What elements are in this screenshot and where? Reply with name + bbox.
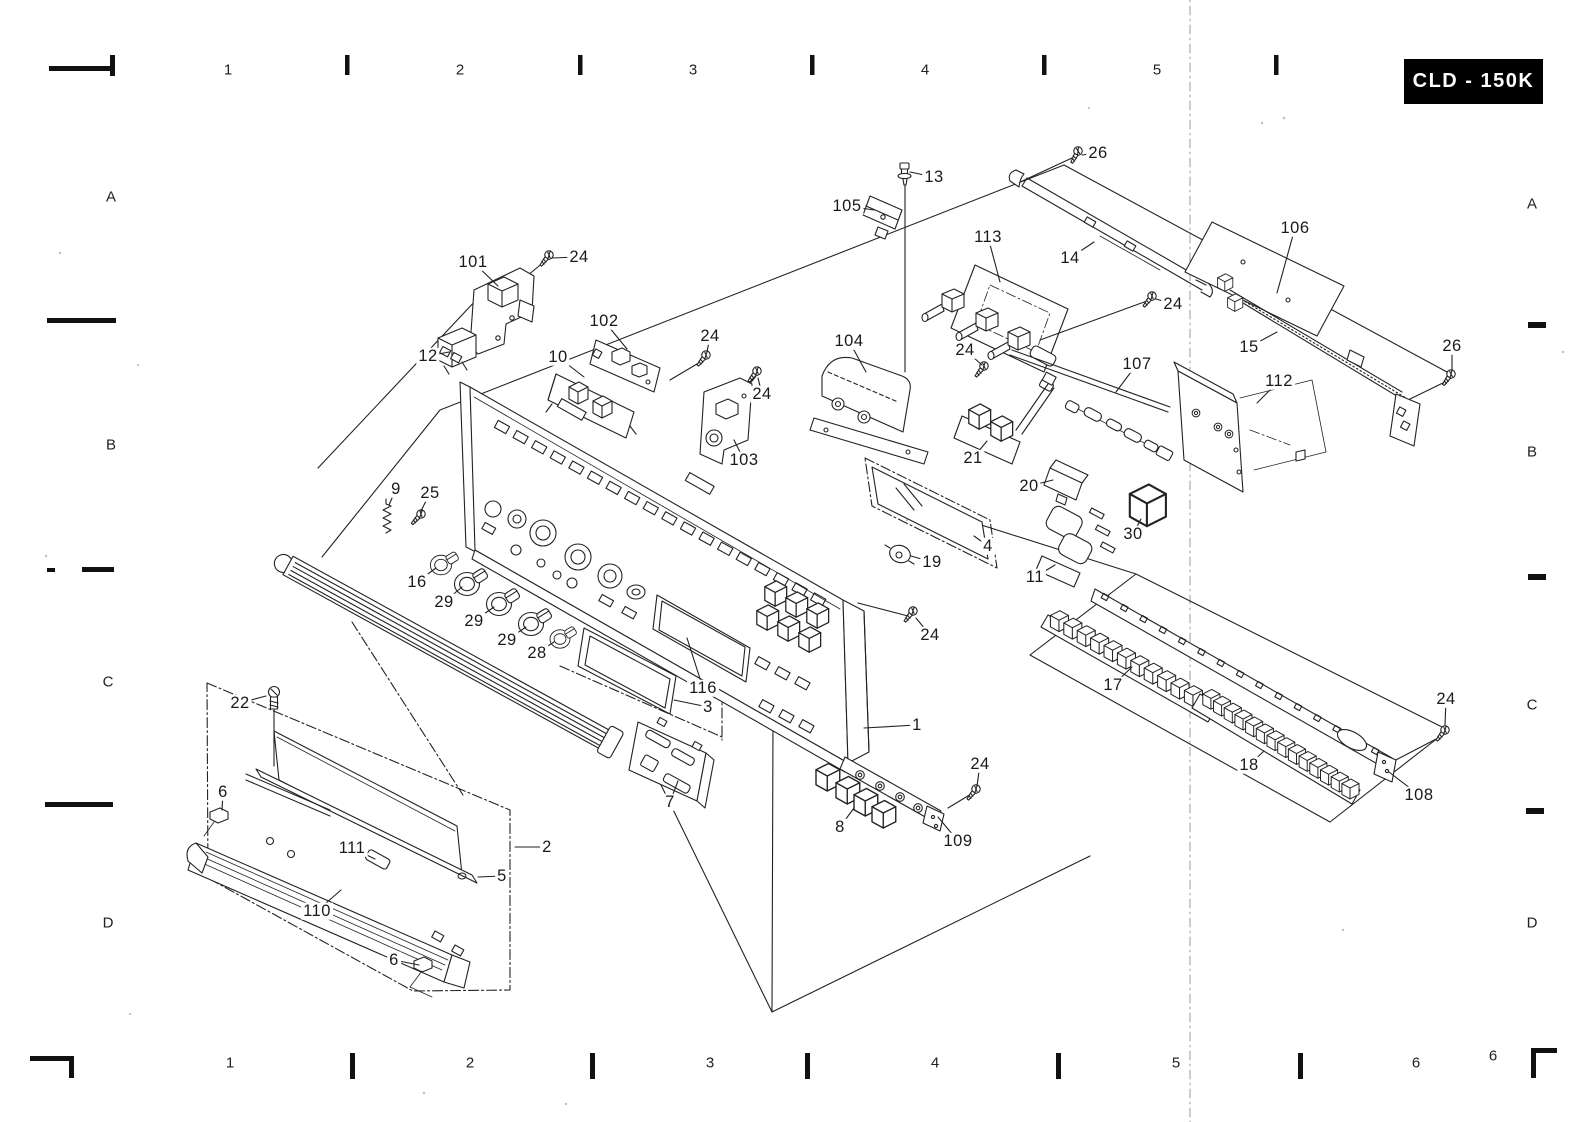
part-30-cap [1130, 484, 1166, 526]
part-callout: 116 [687, 680, 719, 697]
part-26-end-bracket [1390, 394, 1420, 446]
part-14-guide-rail [1009, 170, 1212, 297]
part-callout: 24 [953, 342, 976, 359]
grid-col-label: 1 [226, 1056, 234, 1071]
part-callout: 105 [830, 198, 863, 215]
part-callout: 29 [432, 594, 455, 611]
part-callout: 7 [663, 794, 677, 811]
grid-col-label: 4 [921, 63, 929, 78]
part-callout: 24 [1434, 691, 1457, 708]
grid-col-label: 2 [456, 63, 464, 78]
part-callout: 3 [701, 699, 715, 716]
part-callout: 20 [1017, 478, 1040, 495]
part-callout: 24 [567, 249, 590, 266]
part-104-rf-unit [810, 357, 928, 464]
grid-col-label: 4 [931, 1056, 939, 1071]
grid-col-label: 3 [706, 1056, 714, 1071]
part-callout: 5 [495, 868, 509, 885]
part-callout: 4 [981, 538, 995, 555]
grid-row-label: A [1527, 197, 1537, 212]
service-manual-page: 123451234566ABCDABCD26131051131410624104… [0, 0, 1589, 1122]
part-19-cam [885, 543, 914, 566]
model-number: CLD - 150K [1413, 70, 1535, 93]
part-callout: 17 [1101, 677, 1124, 694]
part-callout: 102 [587, 313, 620, 330]
part-callout: 2 [540, 839, 554, 856]
part-callout: 21 [961, 450, 984, 467]
grid-col-label: 1 [224, 63, 232, 78]
grid-row-label: B [106, 438, 116, 453]
part-callout: 113 [972, 229, 1004, 246]
part-callout: 104 [832, 333, 865, 350]
part-callout: 108 [1402, 787, 1435, 804]
part-callout: 24 [968, 756, 991, 773]
part-callout: 1 [910, 717, 924, 734]
part-callout: 110 [301, 903, 333, 920]
part-callout: 101 [456, 254, 489, 271]
part-callout: 28 [525, 645, 548, 662]
grid-row-label: C [1527, 698, 1538, 713]
part-106-pcb [1185, 222, 1344, 336]
part-callout: 25 [418, 485, 441, 502]
part-callout: 30 [1121, 526, 1144, 543]
grid-col-label: 6 [1489, 1049, 1497, 1064]
part-101-power-switch-bracket [470, 268, 534, 354]
part-callout: 19 [920, 554, 943, 571]
part-113-switch-stacks [922, 289, 1057, 392]
grid-col-label: 2 [466, 1056, 474, 1071]
part-callout: 24 [1161, 296, 1184, 313]
part-callout: 18 [1237, 757, 1260, 774]
grid-row-label: A [106, 190, 116, 205]
part-callout: 24 [918, 627, 941, 644]
part-callout: 16 [405, 574, 428, 591]
grid-col-label: 6 [1412, 1056, 1420, 1071]
part-callout: 103 [727, 452, 760, 469]
part-callout: 24 [698, 328, 721, 345]
part-callout: 107 [1120, 356, 1153, 373]
part-callout: 14 [1058, 250, 1081, 267]
part-callout: 12 [416, 348, 439, 365]
part-callout: 6 [216, 784, 230, 801]
part-callout: 8 [833, 819, 847, 836]
part-callout: 9 [389, 481, 403, 498]
part-callout: 6 [387, 952, 401, 969]
part-callout: 29 [495, 632, 518, 649]
grid-row-label: B [1527, 445, 1537, 460]
part-callout: 26 [1086, 145, 1109, 162]
part-13-screw [898, 163, 911, 185]
part-1-front-panel [460, 382, 869, 772]
part-callout: 106 [1278, 220, 1311, 237]
grid-col-label: 3 [689, 63, 697, 78]
part-2-door-assembly [187, 687, 477, 998]
part-callout: 11 [1024, 569, 1046, 586]
part-callout: 112 [1263, 373, 1295, 390]
grid-row-label: D [1527, 916, 1538, 931]
grid-row-label: D [103, 916, 114, 931]
registration-marks [30, 55, 1557, 1079]
part-callout: 10 [546, 349, 569, 366]
grid-col-label: 5 [1153, 63, 1161, 78]
part-callout: 26 [1440, 338, 1463, 355]
part-callout: 22 [228, 695, 251, 712]
part-callout: 15 [1237, 339, 1260, 356]
exploded-diagram [0, 0, 1589, 1122]
part-11-connector-assy [1036, 504, 1115, 587]
part-105-bracket [863, 196, 902, 239]
grid-row-label: C [103, 675, 114, 690]
part-callout: 29 [462, 613, 485, 630]
part-4-display-window [872, 467, 988, 559]
part-112-bracket [1174, 362, 1326, 492]
part-callout: 111 [337, 840, 368, 857]
part-callout: 13 [922, 169, 945, 186]
part-callout: 109 [941, 833, 974, 850]
part-108-pcb-strip [1091, 589, 1396, 782]
part-102-pcb [590, 340, 660, 392]
grid-col-label: 5 [1172, 1056, 1180, 1071]
part-callout: 24 [750, 386, 773, 403]
model-badge: CLD - 150K [1404, 59, 1543, 104]
part-20-connector [1044, 460, 1088, 505]
